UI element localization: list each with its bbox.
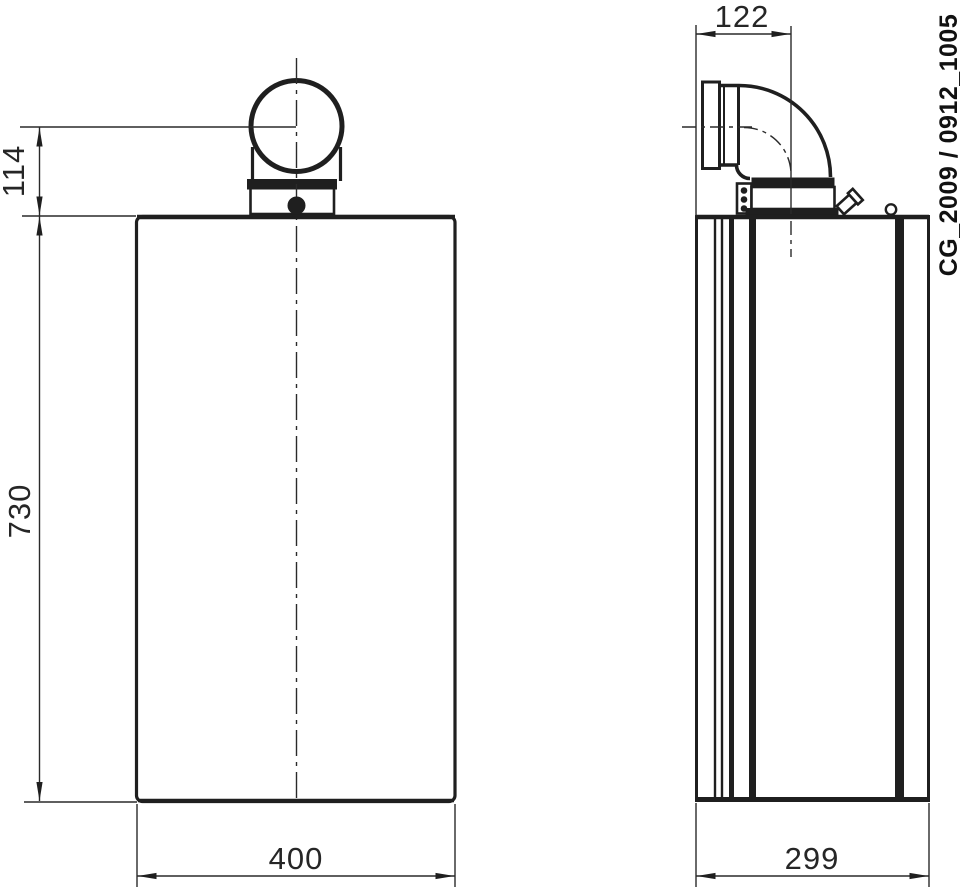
dimension-body-width: 400 bbox=[137, 804, 455, 887]
dimension-body-height: 730 bbox=[2, 217, 137, 803]
collar-box bbox=[752, 187, 835, 209]
document-code: CG_2009 / 0912_1005 bbox=[935, 14, 963, 277]
front-flue-collar-bar bbox=[247, 179, 337, 190]
dimension-value-122: 122 bbox=[715, 0, 770, 34]
elbow-socket bbox=[703, 82, 720, 169]
side-top-ring bbox=[886, 204, 896, 214]
front-collar-screw bbox=[288, 197, 306, 215]
side-view bbox=[682, 26, 929, 801]
elbow-inner-profile bbox=[720, 165, 751, 179]
boiler-dimension-drawing: 114 730 400 bbox=[0, 0, 966, 888]
dimension-flue-offset-front: 114 bbox=[0, 128, 136, 217]
dimension-body-depth: 299 bbox=[696, 803, 929, 887]
side-elbow-centerline-arc bbox=[744, 128, 791, 176]
dimension-value-400: 400 bbox=[269, 841, 324, 876]
technical-drawing-svg: 114 730 400 bbox=[0, 0, 966, 888]
collar-bolt-3 bbox=[741, 205, 748, 212]
side-top-stub-fitting bbox=[835, 189, 863, 216]
dimension-value-114: 114 bbox=[0, 145, 31, 197]
collar-top-bar bbox=[752, 178, 835, 188]
side-flue-collar bbox=[737, 178, 839, 217]
front-body-outline bbox=[137, 217, 456, 802]
dimension-value-299: 299 bbox=[785, 841, 840, 876]
dimension-value-730: 730 bbox=[2, 484, 37, 539]
collar-bolt-2 bbox=[741, 196, 748, 203]
front-view bbox=[20, 58, 455, 802]
collar-bolt-1 bbox=[741, 187, 748, 194]
side-flue-elbow bbox=[703, 82, 831, 179]
